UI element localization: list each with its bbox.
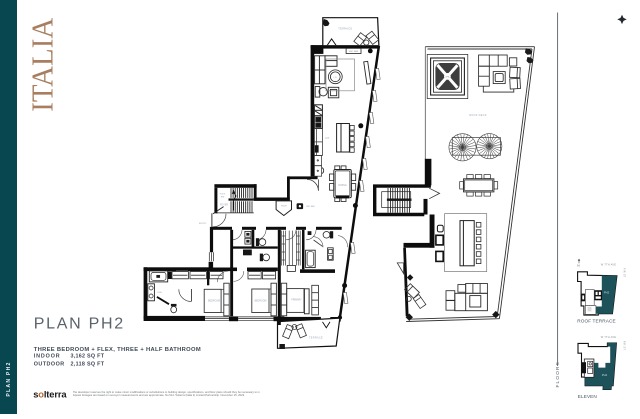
svg-text:TERRACE: TERRACE [338, 27, 352, 30]
svg-text:solterra: solterra [33, 389, 67, 400]
svg-text:PH2: PH2 [602, 373, 608, 377]
svg-text:W 7TH AVE: W 7TH AVE [601, 335, 617, 339]
svg-text:WET BAR: WET BAR [349, 50, 359, 53]
svg-text:ITALIA: ITALIA [26, 18, 60, 112]
svg-text:FLOORS: FLOORS [555, 361, 560, 387]
svg-text:PLAN PH2: PLAN PH2 [34, 316, 124, 333]
svg-text:ROOF TERRACE: ROOF TERRACE [577, 318, 616, 323]
svg-text:2,118 SQ FT: 2,118 SQ FT [71, 361, 105, 367]
svg-text:OUTDOOR: OUTDOOR [34, 361, 65, 367]
svg-text:KIT.: KIT. [325, 137, 329, 140]
svg-text:PWDR: PWDR [281, 205, 287, 207]
svg-text:3,162 SQ FT: 3,162 SQ FT [71, 354, 105, 360]
svg-text:SPA: SPA [445, 75, 450, 78]
svg-text:FIR ST: FIR ST [622, 341, 626, 351]
svg-text:W 7TH AVE: W 7TH AVE [601, 262, 617, 266]
svg-text:DINING: DINING [338, 184, 347, 187]
svg-text:PH2: PH2 [604, 291, 610, 295]
svg-text:ENS.: ENS. [158, 292, 163, 294]
svg-text:BEDROOM: BEDROOM [255, 301, 267, 303]
svg-text:BEDROOM: BEDROOM [208, 301, 220, 303]
svg-text:TERRACE: TERRACE [309, 337, 323, 340]
svg-text:THREE BEDROOM + FLEX, THREE +: THREE BEDROOM + FLEX, THREE + HALF BATHR… [34, 347, 201, 353]
svg-text:INDOOR: INDOOR [34, 354, 60, 360]
svg-text:LIV: LIV [334, 77, 338, 79]
svg-text:FLEX: FLEX [220, 194, 226, 196]
svg-text:FOYER: FOYER [220, 205, 228, 207]
svg-text:FIR ST: FIR ST [622, 268, 626, 278]
svg-text:RM: RM [221, 197, 225, 199]
svg-text:ELEVEN: ELEVEN [578, 394, 597, 399]
svg-text:N: N [577, 264, 579, 268]
svg-text:WET BAR: WET BAR [306, 205, 315, 208]
svg-text:PRIMARY: PRIMARY [291, 299, 302, 302]
svg-text:ENTRY: ENTRY [199, 223, 207, 225]
svg-text:ROOF DECK: ROOF DECK [469, 114, 487, 117]
